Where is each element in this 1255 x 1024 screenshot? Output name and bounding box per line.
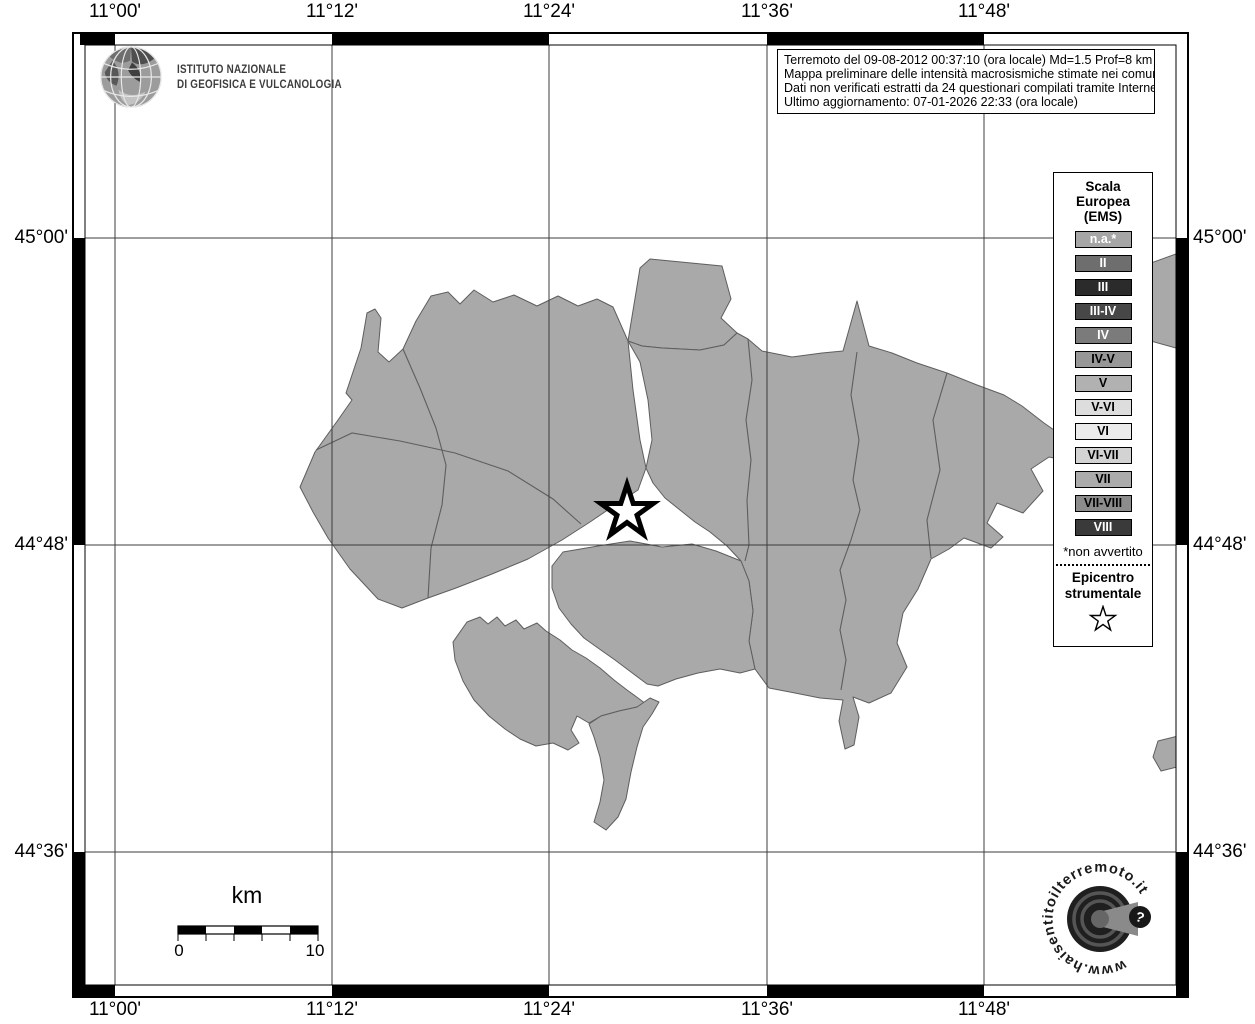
legend-swatch-v: V — [1075, 375, 1132, 392]
legend-swatch-v-vi: V-VI — [1075, 399, 1132, 416]
municipality-polygon — [628, 259, 737, 350]
lon-label-top: 11°48' — [958, 2, 1010, 22]
legend-title-line: (EMS) — [1054, 209, 1152, 224]
legend-swatch-viii: VIII — [1075, 519, 1132, 536]
municipality-polygon — [628, 301, 1093, 749]
ingv-org-line2: DI GEOFISICA E VULCANOLOGIA — [177, 77, 342, 92]
legend-swatch-ii: II — [1075, 255, 1132, 272]
scale-bar — [178, 926, 318, 941]
lat-label-left: 44°36' — [15, 842, 69, 862]
municipalities-layer — [300, 254, 1184, 830]
legend-title: Scala Europea (EMS) — [1054, 179, 1152, 224]
legend-swatch-iii-iv: III-IV — [1075, 303, 1132, 320]
legend-title-line: Scala — [1054, 179, 1152, 194]
lat-label-right: 45°00' — [1193, 228, 1247, 248]
lon-label-top: 11°00' — [89, 2, 141, 22]
lon-label-bottom: 11°12' — [306, 1000, 358, 1020]
municipality-polygon — [1153, 736, 1184, 771]
intensity-legend: Scala Europea (EMS) n.a.* II III III-IV … — [1053, 172, 1153, 647]
lat-label-right: 44°36' — [1193, 842, 1247, 862]
legend-swatch-vi-vii: VI-VII — [1075, 447, 1132, 464]
lat-label-left: 44°48' — [15, 535, 69, 555]
info-line-updated: Ultimo aggiornamento: 07-01-2026 22:33 (… — [784, 95, 1148, 109]
lon-label-bottom: 11°24' — [523, 1000, 575, 1020]
epicenter-label-line: strumentale — [1054, 586, 1152, 602]
star-icon — [1088, 605, 1118, 633]
ingv-globe-icon — [99, 45, 163, 109]
lon-label-top: 11°24' — [523, 2, 575, 22]
legend-title-line: Europea — [1054, 194, 1152, 209]
lat-label-right: 44°48' — [1193, 535, 1247, 555]
legend-swatch-na: n.a.* — [1075, 231, 1132, 248]
legend-divider — [1056, 564, 1150, 566]
ingv-logo: ISTITUTO NAZIONALE DI GEOFISICA E VULCAN… — [99, 45, 378, 109]
legend-swatch-vii: VII — [1075, 471, 1132, 488]
haisentitoilterremoto-logo: ? www.haisentitoilterremoto.it — [1035, 853, 1167, 985]
legend-footnote: *non avvertito — [1054, 544, 1152, 559]
legend-swatch-vii-viii: VII-VIII — [1075, 495, 1132, 512]
ingv-org-line1: ISTITUTO NAZIONALE — [177, 62, 342, 77]
lat-label-left: 45°00' — [15, 228, 69, 248]
legend-swatch-iii: III — [1075, 279, 1132, 296]
lon-label-bottom: 11°36' — [741, 1000, 793, 1020]
ingv-org-name: ISTITUTO NAZIONALE DI GEOFISICA E VULCAN… — [177, 62, 342, 92]
legend-swatch-vi: VI — [1075, 423, 1132, 440]
epicenter-label-line: Epicentro — [1054, 570, 1152, 586]
info-line-event: Terremoto del 09-08-2012 00:37:10 (ora l… — [784, 53, 1148, 67]
lon-label-bottom: 11°00' — [89, 1000, 141, 1020]
epicenter-legend-label: Epicentro strumentale — [1054, 570, 1152, 602]
lon-label-top: 11°12' — [306, 2, 358, 22]
legend-swatch-iv-v: IV-V — [1075, 351, 1132, 368]
municipality-polygon — [589, 698, 659, 830]
lon-label-bottom: 11°48' — [958, 1000, 1010, 1020]
legend-swatch-iv: IV — [1075, 327, 1132, 344]
info-line-data-source: Dati non verificati estratti da 24 quest… — [784, 81, 1148, 95]
lon-label-top: 11°36' — [741, 2, 793, 22]
info-line-map-type: Mappa preliminare delle intensità macros… — [784, 67, 1148, 81]
earthquake-info-box: Terremoto del 09-08-2012 00:37:10 (ora l… — [777, 49, 1155, 114]
